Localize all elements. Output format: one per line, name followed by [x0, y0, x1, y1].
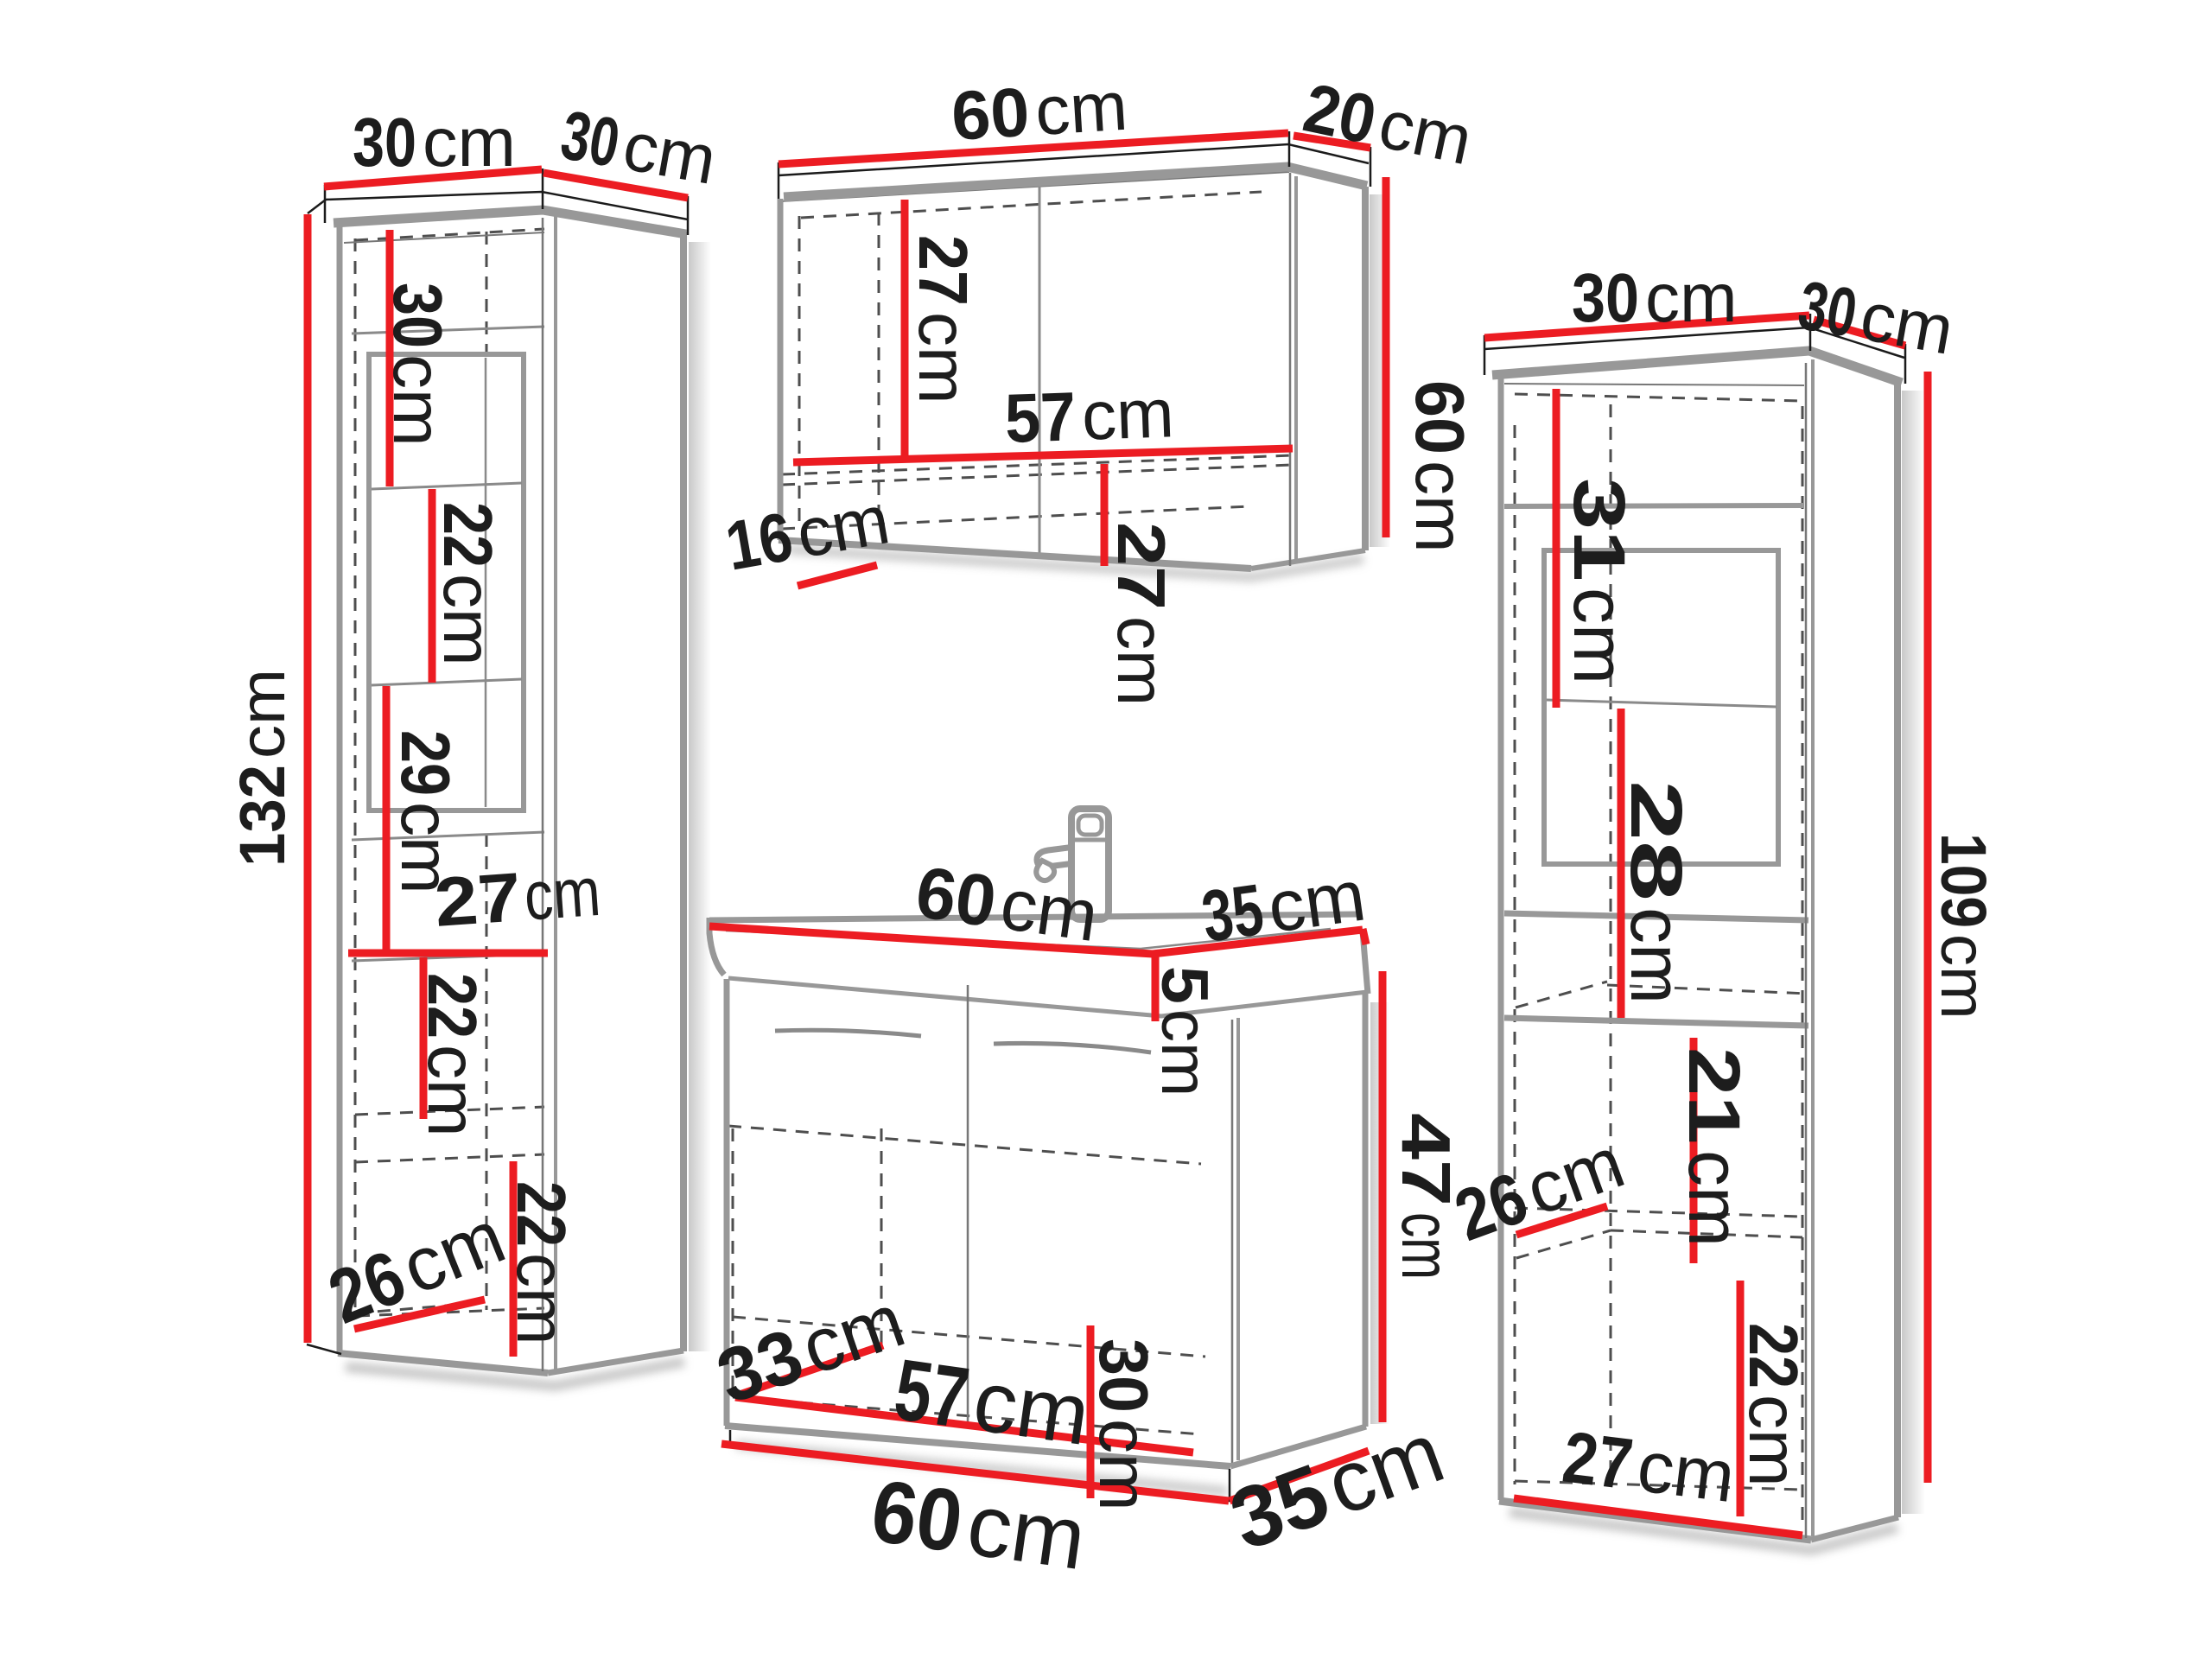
- svg-text:60cm: 60cm: [950, 67, 1130, 155]
- svg-text:30cm: 30cm: [1572, 259, 1738, 336]
- svg-text:60cm: 60cm: [1402, 380, 1478, 553]
- svg-text:27cm: 27cm: [905, 235, 982, 404]
- svg-text:27cm: 27cm: [432, 853, 603, 941]
- svg-text:22cm: 22cm: [503, 1181, 580, 1345]
- svg-text:57cm: 57cm: [1003, 374, 1175, 457]
- svg-text:28cm: 28cm: [1616, 780, 1697, 1004]
- svg-text:22cm: 22cm: [429, 502, 506, 666]
- svg-text:5cm: 5cm: [1147, 966, 1221, 1096]
- svg-text:22cm: 22cm: [414, 973, 491, 1137]
- svg-text:22cm: 22cm: [1735, 1323, 1812, 1487]
- svg-text:30cm: 30cm: [353, 104, 516, 181]
- svg-text:31cm: 31cm: [1559, 478, 1640, 684]
- svg-text:109cm: 109cm: [1928, 833, 1999, 1020]
- svg-text:30cm: 30cm: [379, 283, 456, 447]
- svg-text:30cm: 30cm: [1085, 1338, 1162, 1511]
- svg-text:132cm: 132cm: [226, 669, 298, 867]
